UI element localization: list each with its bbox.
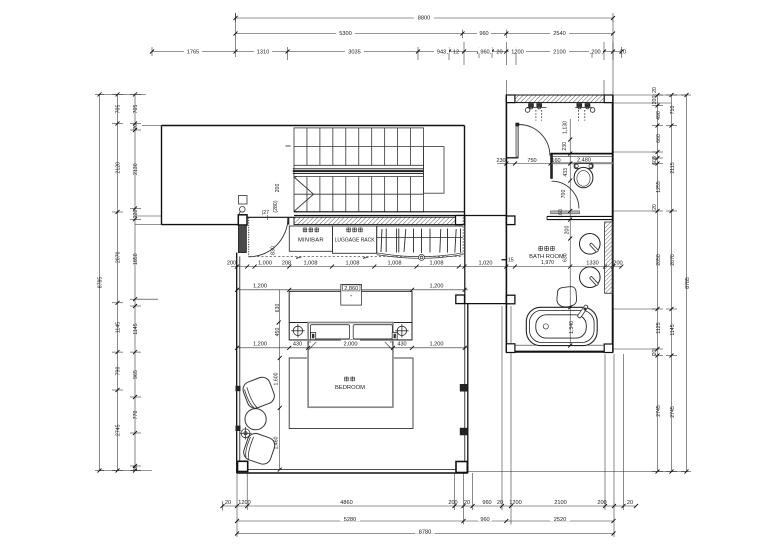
svg-text:4860: 4860 <box>340 500 352 506</box>
svg-text:5280: 5280 <box>344 517 356 523</box>
svg-text:1,008: 1,008 <box>430 260 444 266</box>
svg-text:1850: 1850 <box>133 253 139 265</box>
svg-text:1145: 1145 <box>133 323 139 334</box>
svg-text:2540: 2540 <box>553 31 565 37</box>
svg-text:BEDROOM: BEDROOM <box>335 385 365 391</box>
svg-text:1145: 1145 <box>670 324 676 335</box>
svg-text:1,970: 1,970 <box>541 260 554 266</box>
svg-text:1,600: 1,600 <box>274 372 280 385</box>
svg-text:1,000: 1,000 <box>258 260 272 266</box>
svg-text:960: 960 <box>479 31 488 37</box>
svg-text:490: 490 <box>656 111 662 120</box>
svg-text:1,020: 1,020 <box>479 260 493 266</box>
svg-text:2745: 2745 <box>116 424 122 436</box>
svg-text:8785: 8785 <box>685 277 691 289</box>
svg-text:710: 710 <box>670 106 676 115</box>
svg-text:200: 200 <box>448 500 457 506</box>
svg-text:705: 705 <box>116 105 122 114</box>
svg-text:200: 200 <box>227 260 236 266</box>
svg-text:630: 630 <box>275 304 281 313</box>
svg-text:430: 430 <box>293 342 302 348</box>
svg-text:12: 12 <box>453 49 459 55</box>
svg-text:1,008: 1,008 <box>304 260 318 266</box>
svg-text:1145: 1145 <box>116 322 122 333</box>
svg-text:|27: |27 <box>262 210 269 216</box>
svg-text:1,200: 1,200 <box>253 342 267 348</box>
svg-text:8780: 8780 <box>419 530 431 536</box>
svg-text:2115: 2115 <box>670 162 676 173</box>
svg-text:1200: 1200 <box>238 500 250 506</box>
svg-text:(280): (280) <box>273 200 279 212</box>
svg-text:1,008: 1,008 <box>346 260 360 266</box>
svg-text:MINIBAR: MINIBAR <box>298 238 324 244</box>
svg-text:20: 20 <box>652 204 658 210</box>
svg-text:960: 960 <box>480 517 489 523</box>
svg-text:3035: 3035 <box>348 49 360 55</box>
svg-text:943: 943 <box>437 49 446 55</box>
svg-text:8785: 8785 <box>98 277 104 289</box>
svg-text:20: 20 <box>652 87 658 93</box>
svg-text:830: 830 <box>271 246 277 255</box>
svg-text:220: 220 <box>133 209 139 218</box>
svg-text:430: 430 <box>397 342 406 348</box>
svg-text:1330: 1330 <box>586 260 598 266</box>
svg-text:20: 20 <box>627 500 633 506</box>
svg-text:230: 230 <box>496 158 505 164</box>
svg-text:608: 608 <box>652 156 658 165</box>
svg-text:2520: 2520 <box>554 517 566 523</box>
svg-text:BATH ROOM: BATH ROOM <box>529 254 564 260</box>
svg-text:1,200: 1,200 <box>430 342 444 348</box>
svg-text:2100: 2100 <box>554 500 566 506</box>
svg-text:2745: 2745 <box>670 406 676 418</box>
svg-text:770: 770 <box>133 411 139 420</box>
svg-text:1,200: 1,200 <box>430 284 444 290</box>
svg-text:20: 20 <box>620 49 626 55</box>
svg-text:2100: 2100 <box>553 49 565 55</box>
svg-text:1,200: 1,200 <box>253 284 267 290</box>
svg-text:20: 20 <box>496 49 502 55</box>
svg-text:2,860: 2,860 <box>344 286 358 292</box>
svg-text:1310: 1310 <box>257 49 269 55</box>
svg-text:1765: 1765 <box>187 49 199 55</box>
svg-text:2,480: 2,480 <box>577 157 591 163</box>
svg-text:1255: 1255 <box>656 181 662 193</box>
svg-text:LUGGAGE RACK: LUGGAGE RACK <box>335 238 376 244</box>
svg-text:1200: 1200 <box>511 49 523 55</box>
svg-text:2130: 2130 <box>133 163 139 175</box>
svg-text:2070: 2070 <box>670 254 676 266</box>
svg-text:5300: 5300 <box>339 31 351 37</box>
svg-text:700: 700 <box>561 190 567 199</box>
svg-text:960: 960 <box>480 49 489 55</box>
svg-text:20: 20 <box>652 350 658 356</box>
svg-text:200: 200 <box>613 260 622 266</box>
svg-text:160: 160 <box>558 209 564 218</box>
svg-text:2745: 2745 <box>656 405 662 417</box>
svg-text:20: 20 <box>225 500 231 506</box>
svg-text:1,130: 1,130 <box>563 121 569 134</box>
svg-text:2070: 2070 <box>116 252 122 264</box>
svg-text:15: 15 <box>508 258 514 264</box>
svg-text:790: 790 <box>116 367 122 376</box>
svg-text:200: 200 <box>564 226 570 235</box>
svg-text:960: 960 <box>482 500 491 506</box>
svg-text:200: 200 <box>591 49 600 55</box>
svg-text:200: 200 <box>275 184 281 193</box>
svg-text:160: 160 <box>551 158 560 164</box>
svg-text:2,000: 2,000 <box>344 342 358 348</box>
svg-text:450: 450 <box>275 328 281 337</box>
svg-text:2120: 2120 <box>116 162 122 174</box>
svg-text:208: 208 <box>282 260 291 266</box>
svg-text:20: 20 <box>133 124 139 130</box>
svg-text:2050: 2050 <box>656 254 662 266</box>
svg-text:20: 20 <box>464 500 470 506</box>
svg-text:660: 660 <box>656 134 662 143</box>
svg-text:705: 705 <box>133 105 139 114</box>
svg-text:1,008: 1,008 <box>388 260 402 266</box>
svg-text:1125: 1125 <box>656 322 662 333</box>
svg-text:750: 750 <box>527 158 536 164</box>
svg-text:230: 230 <box>562 142 568 151</box>
svg-text:965: 965 <box>133 370 139 379</box>
svg-text:433: 433 <box>563 168 569 177</box>
svg-text:1,340: 1,340 <box>569 321 575 334</box>
svg-text:8800: 8800 <box>418 16 430 22</box>
